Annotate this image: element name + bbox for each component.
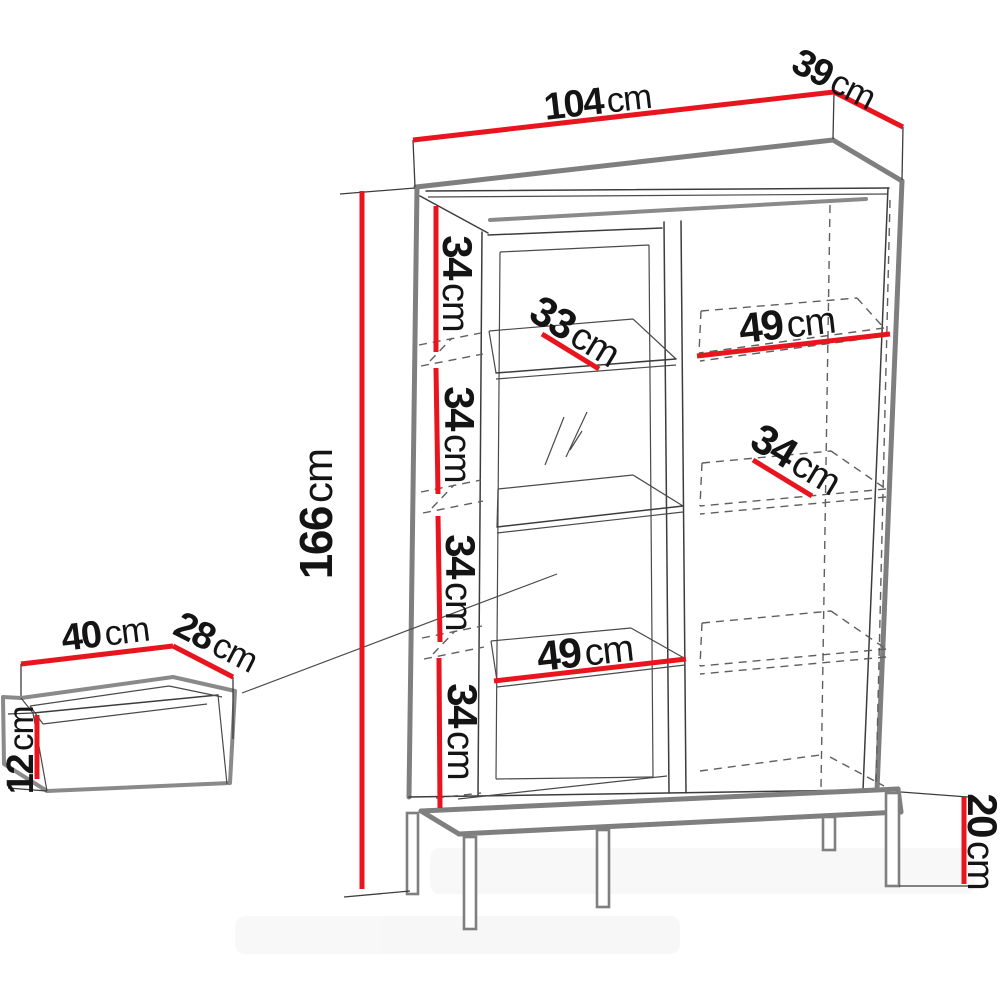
dim-drawer-height-unit: cm [2, 706, 41, 751]
ext-height-bottom [344, 891, 410, 897]
top-panel-front-edge [426, 188, 889, 191]
dim-section1-unit: cm [434, 283, 476, 332]
dim-label-right-shelf-depth: 34 cm [743, 414, 850, 504]
glass-reflection-marks [545, 412, 587, 465]
dim-section2-unit: cm [436, 434, 478, 483]
dim-section3-value: 34 [437, 534, 484, 580]
dim-label-base-height: 20 cm [959, 793, 1000, 889]
dim-width-unit: cm [604, 77, 653, 121]
dim-label-section2: 34 cm [436, 386, 483, 482]
dim-label-height: 166 cm [290, 449, 342, 579]
dim-height-value: 166 [290, 507, 342, 579]
dim-label-drawer-height: 12 cm [0, 706, 42, 794]
dim-label-section3: 34 cm [437, 534, 484, 630]
ext-depth-right [902, 127, 903, 180]
top-back-edge [416, 140, 833, 187]
diagram-canvas: 104 cm 39 cm 166 cm 34 cm 34 cm 34 cm 34… [0, 0, 1000, 1000]
glass-shelf-2 [497, 475, 683, 533]
ext-width-left [413, 140, 415, 187]
top-right-edge [833, 140, 902, 181]
furniture-dimension-diagram: 104 cm 39 cm 166 cm 34 cm 34 cm 34 cm 34… [0, 0, 1000, 1000]
leg-front-middle [597, 830, 609, 907]
dim-label-section4: 34 cm [439, 683, 486, 779]
dim-label-width: 104 cm [542, 75, 654, 129]
dim-section2-value: 34 [436, 386, 483, 432]
dim-base-height-value: 20 [959, 793, 1000, 837]
base-left-rail [421, 811, 459, 834]
leg-back-left [407, 813, 418, 894]
top-panel-thickness [428, 194, 888, 197]
dim-right-shelf-width-value: 49 [736, 300, 785, 352]
leg-back-right [823, 817, 835, 850]
dim-label-glass-shelf-depth: 33 cm [522, 286, 629, 376]
leg-front-left [464, 837, 476, 929]
dim-drawer-width-value: 40 [59, 613, 103, 660]
dim-height-unit: cm [294, 449, 341, 503]
dim-section3-unit: cm [437, 582, 479, 631]
hidden-shelf-3 [700, 611, 886, 674]
divider-right-edge [681, 221, 686, 793]
door-inner-right [649, 245, 653, 777]
door-inner-left [496, 252, 500, 779]
dim-label-section1: 34 cm [434, 235, 481, 331]
door-inner-bottom [496, 777, 653, 779]
dim-width-value: 104 [542, 80, 607, 129]
left-floor-back-edge [458, 776, 667, 799]
dim-section4-value: 34 [439, 683, 486, 729]
top-panel-left-end [420, 196, 488, 233]
drawer-pointer-line [242, 574, 557, 693]
right-floor-back-edge-hidden [700, 755, 820, 771]
top-overhang-crease [490, 199, 866, 220]
dim-base-height-unit: cm [959, 841, 1000, 890]
dim-section1-value: 34 [434, 235, 481, 281]
base-back-rail [421, 789, 898, 811]
ext-height-top [340, 188, 415, 194]
dim-section4-unit: cm [439, 731, 481, 780]
dim-drawer-width-unit: cm [102, 610, 151, 654]
leg-right [886, 793, 899, 886]
dim-right-shelf-width-unit: cm [784, 299, 837, 346]
dim-drawer-height-value: 12 [0, 755, 42, 795]
left-front-edge [409, 187, 417, 797]
dim-left-shelf-width-unit: cm [582, 627, 635, 674]
ext-base-top [901, 792, 968, 797]
dim-left-shelf-width-value: 49 [534, 628, 583, 680]
door-inner-top [500, 245, 649, 252]
door-outer-top [488, 228, 662, 235]
